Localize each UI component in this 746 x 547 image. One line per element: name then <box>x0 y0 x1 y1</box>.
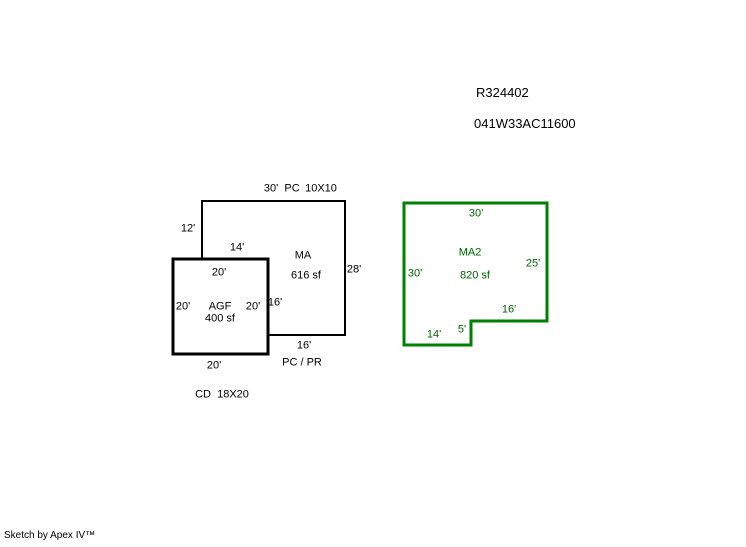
ma-name: MA <box>295 251 312 262</box>
agf-area: 400 sf <box>205 314 235 325</box>
ma2-top-dimension: 30' <box>469 209 483 220</box>
ma2-step-dimension: 16' <box>502 305 516 316</box>
agf-left-dimension: 20' <box>176 302 190 313</box>
ma-inner-dimension: 16' <box>268 298 282 309</box>
sketch-canvas <box>0 0 746 547</box>
ma2-right-dimension: 25' <box>526 259 540 270</box>
agf-right-dimension: 20' <box>246 302 260 313</box>
sketch-credit: Sketch by Apex IV™ <box>4 531 95 541</box>
ma-bottom-code: PC / PR <box>282 358 322 369</box>
ma-left-dimension: 12' <box>181 224 195 235</box>
ma-top-code: PC <box>284 184 299 195</box>
ma2-area: 820 sf <box>460 271 490 282</box>
ma2-notch-dimension: 5' <box>458 325 466 336</box>
ma-top-dimension: 30' <box>264 184 278 195</box>
ma2-bottom-dimension: 14' <box>427 330 441 341</box>
ma2-name: MA2 <box>459 248 482 259</box>
ma-bottom-dimension: 16' <box>297 341 311 352</box>
agf-top-dimension: 20' <box>212 268 226 279</box>
ma-step-dimension: 14' <box>230 243 244 254</box>
agf-name: AGF <box>209 302 232 313</box>
agf-bottom-dimension: 20' <box>207 361 221 372</box>
ma2-left-dimension: 30' <box>408 269 422 280</box>
ma-area: 616 sf <box>291 271 321 282</box>
ma-top-size: 10X10 <box>305 184 337 195</box>
apex-sketch-page: R324402 041W33AC11600 30' PC 10X10 12' 1… <box>0 0 746 547</box>
ma-right-dimension: 28' <box>347 265 361 276</box>
agf-note: CD 18X20 <box>195 390 249 401</box>
